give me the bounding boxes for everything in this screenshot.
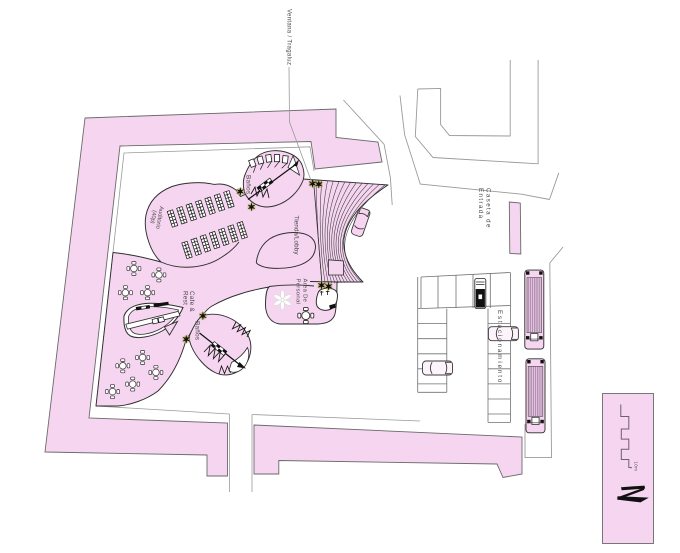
svg-text:Area De: Area De xyxy=(302,279,308,303)
svg-text:Estacionamiento: Estacionamiento xyxy=(496,310,503,384)
svg-text:Entrada: Entrada xyxy=(477,188,484,219)
svg-text:Tienda/Lobby: Tienda/Lobby xyxy=(293,216,300,256)
svg-text:Personal: Personal xyxy=(295,279,301,305)
svg-text:Baños: Baños xyxy=(194,321,201,340)
svg-text:Baños: Baños xyxy=(245,175,252,194)
svg-text:Rest: Rest xyxy=(182,291,189,305)
svg-text:Caseta de: Caseta de xyxy=(485,188,492,229)
svg-text:10m: 10m xyxy=(634,462,639,472)
svg-text:Ventana / Tragaluz: Ventana / Tragaluz xyxy=(286,9,292,65)
